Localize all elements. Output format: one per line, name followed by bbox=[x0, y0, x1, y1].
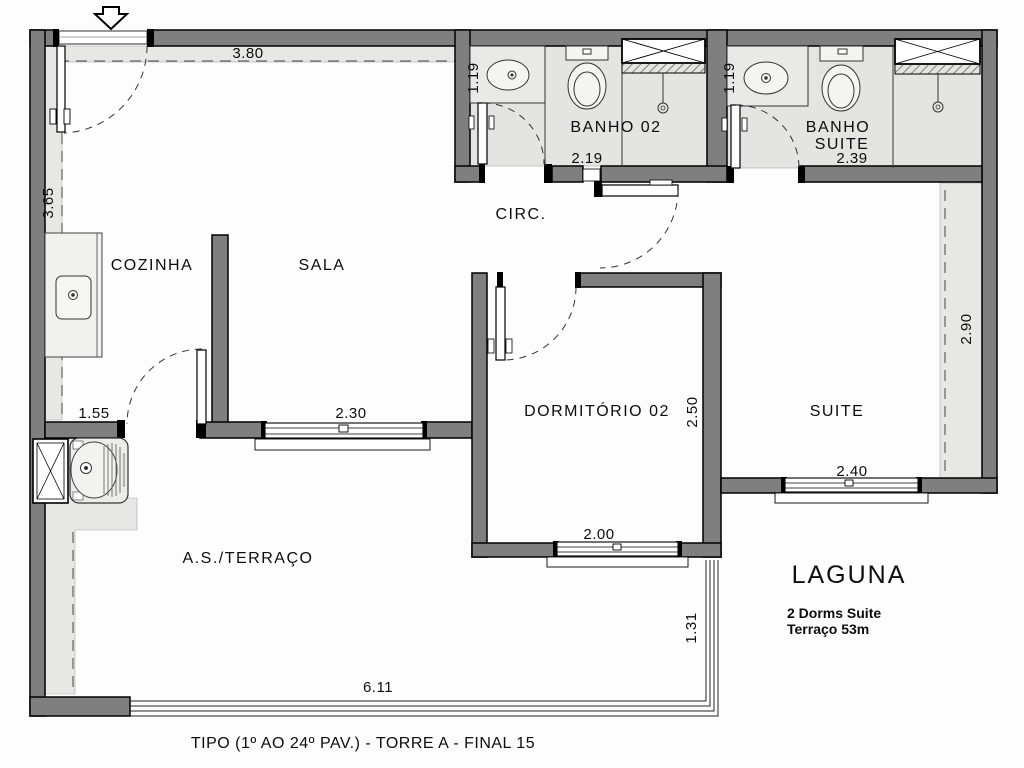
window-dorm bbox=[547, 542, 688, 567]
wall-sala-bottom-a bbox=[45, 422, 122, 438]
wall-suite-bottom-a bbox=[721, 478, 785, 493]
wall-banho02-bottom-b bbox=[552, 166, 583, 182]
label-as-terraco: A.S./TERRAÇO bbox=[183, 550, 314, 567]
wall-dorm-top bbox=[577, 273, 721, 287]
entry-threshold bbox=[59, 31, 147, 44]
floor-plan-page: 3.80 3.65 1.19 2.19 1.19 2.39 BANHO 02 B… bbox=[0, 0, 1024, 768]
wall-dorm-bottom-b bbox=[678, 543, 721, 557]
window-sala bbox=[255, 423, 430, 450]
label-circ: CIRC. bbox=[495, 206, 546, 223]
banho-suite-sink bbox=[744, 62, 788, 94]
dim-banho-suite-w: 1.19 bbox=[721, 62, 738, 93]
label-sala: SALA bbox=[299, 257, 346, 274]
dim-banho02-w: 1.19 bbox=[465, 62, 482, 93]
legend-line1: 2 Dorms Suite bbox=[787, 605, 881, 621]
wall-banho02-bottom-a bbox=[455, 166, 483, 182]
wall-left bbox=[30, 30, 45, 716]
duct-shaft bbox=[33, 439, 68, 503]
plan-caption: TIPO (1º AO 24º PAV.) - TORRE A - FINAL … bbox=[191, 735, 535, 752]
dim-terrace-len: 6.11 bbox=[363, 679, 393, 696]
label-banho02: BANHO 02 bbox=[570, 119, 661, 136]
circ-threshold bbox=[583, 169, 600, 181]
dim-left: 3.65 bbox=[40, 187, 57, 218]
banho-suite-toilet bbox=[820, 46, 863, 111]
dim-kitchen-pass: 1.55 bbox=[78, 405, 109, 422]
wall-bottom-left bbox=[30, 697, 130, 716]
wall-sala-bottom-c bbox=[423, 422, 472, 438]
laundry-tank bbox=[70, 438, 128, 503]
label-suite: SUITE bbox=[810, 403, 865, 420]
wall-suite-bottom-b bbox=[918, 478, 997, 493]
label-cozinha: COZINHA bbox=[111, 257, 194, 274]
wall-dorm-bottom-a bbox=[472, 543, 557, 557]
label-banho-suite-2: SUITE bbox=[815, 136, 870, 153]
dim-dorm-window: 2.00 bbox=[583, 526, 614, 543]
banho02-toilet bbox=[566, 46, 608, 109]
dim-terrace-depth: 1.31 bbox=[683, 612, 700, 643]
wall-right bbox=[982, 30, 997, 493]
wall-banho-separator bbox=[707, 30, 727, 182]
dim-top: 3.80 bbox=[232, 45, 263, 62]
dim-banho02-len: 2.19 bbox=[571, 150, 602, 167]
plan-title: LAGUNA bbox=[792, 561, 907, 589]
dim-suite-window: 2.40 bbox=[836, 463, 867, 480]
wall-dorm-right bbox=[703, 273, 721, 557]
dim-sala-window: 2.30 bbox=[335, 405, 366, 422]
wall-dorm-left bbox=[472, 273, 487, 557]
wall-top bbox=[148, 30, 997, 46]
dim-dorm-depth: 2.50 bbox=[684, 396, 701, 427]
wall-banho02-left bbox=[455, 30, 470, 182]
wall-sala-bottom-b bbox=[200, 422, 265, 438]
cozinha-fixtures bbox=[45, 233, 102, 357]
as-fixtures bbox=[33, 438, 128, 503]
dim-suite-depth: 2.90 bbox=[958, 313, 975, 344]
wall-cozinha-sala-divider bbox=[212, 235, 228, 425]
floor-plan-svg: 3.80 3.65 1.19 2.19 1.19 2.39 BANHO 02 B… bbox=[0, 0, 1024, 768]
banho02-sink bbox=[487, 60, 529, 90]
window-suite bbox=[775, 478, 928, 503]
label-dormitorio02: DORMITÓRIO 02 bbox=[524, 401, 670, 420]
label-banho-suite-1: BANHO bbox=[806, 119, 870, 136]
legend-line2: Terraço 53m bbox=[787, 621, 869, 637]
wall-banho-suite-bottom bbox=[800, 166, 982, 182]
kitchen-sink bbox=[56, 276, 91, 319]
